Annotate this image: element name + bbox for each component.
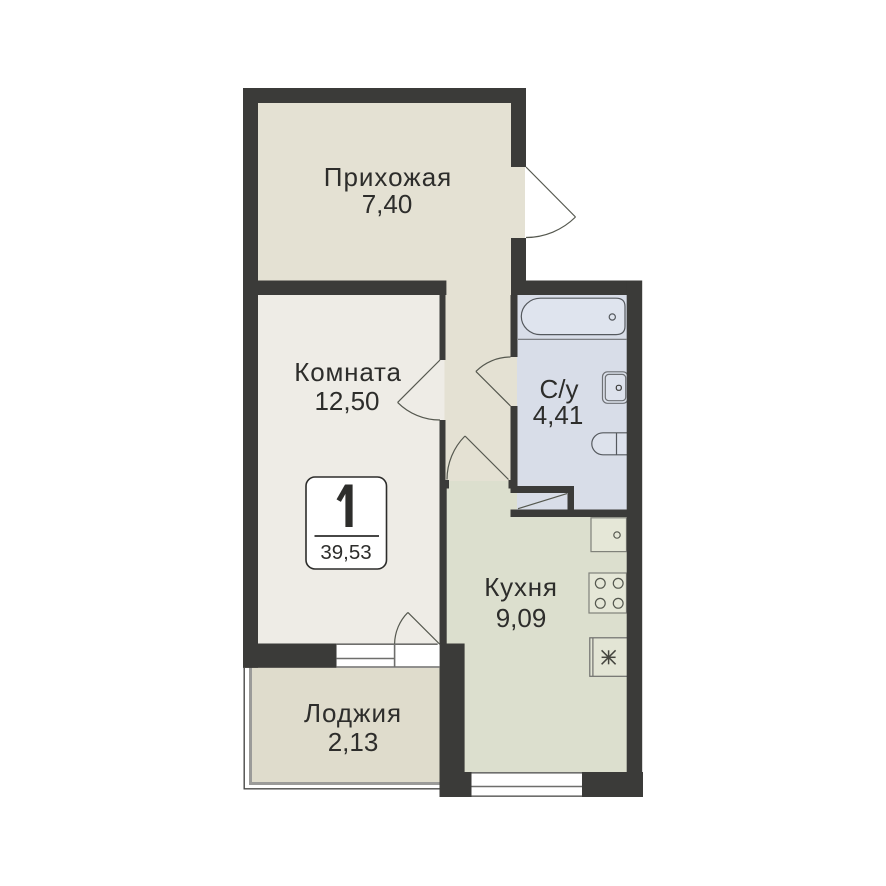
svg-text:2,13: 2,13 xyxy=(328,727,379,757)
svg-text:Комната: Комната xyxy=(294,357,401,387)
svg-text:39,53: 39,53 xyxy=(320,541,371,564)
svg-text:12,50: 12,50 xyxy=(314,386,379,416)
svg-text:4,41: 4,41 xyxy=(533,400,584,430)
svg-text:7,40: 7,40 xyxy=(362,189,413,219)
svg-text:Прихожая: Прихожая xyxy=(324,162,452,192)
svg-text:9,09: 9,09 xyxy=(496,603,547,633)
svg-text:Кухня: Кухня xyxy=(484,572,558,602)
svg-text:Лоджия: Лоджия xyxy=(304,698,402,728)
